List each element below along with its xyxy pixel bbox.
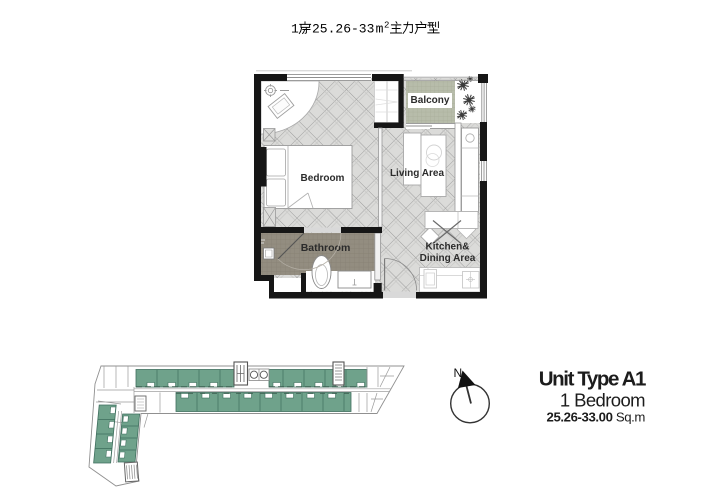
svg-text:m: m [376,22,384,37]
svg-text:25.26-33: 25.26-33 [312,22,374,37]
svg-text:25.26-33.00 Sq.m: 25.26-33.00 Sq.m [547,410,646,425]
svg-text:1 Bedroom: 1 Bedroom [560,390,645,411]
svg-text:2: 2 [384,21,389,31]
svg-text:Dining Area: Dining Area [420,253,476,264]
svg-text:N: N [454,366,463,380]
svg-text:1: 1 [291,22,299,37]
svg-text:Unit Type A1: Unit Type A1 [539,368,646,391]
svg-text:Bathroom: Bathroom [301,242,351,254]
svg-text:Bedroom: Bedroom [301,173,345,184]
svg-text:Living Area: Living Area [390,168,445,179]
svg-text:Kitchen&: Kitchen& [426,242,470,253]
svg-text:Balcony: Balcony [411,95,450,106]
